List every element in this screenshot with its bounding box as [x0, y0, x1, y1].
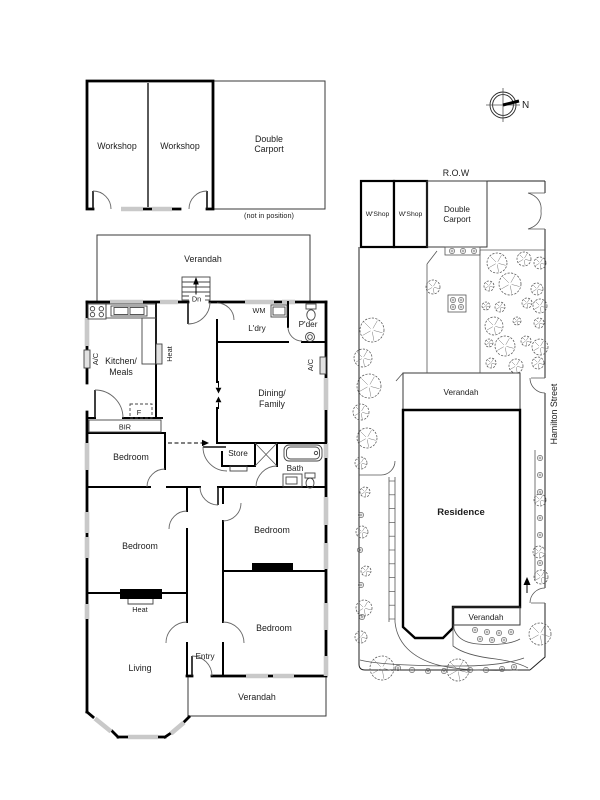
tree-icon [513, 317, 521, 325]
stairs-label: Dn [192, 295, 201, 304]
garden-path [389, 477, 395, 622]
verandah-front-label: Verandah [238, 692, 276, 702]
plant-icon [357, 547, 362, 552]
street-label: Hamilton Street [549, 383, 559, 444]
carport-label-line2: Carport [254, 144, 284, 154]
plant-icon [425, 668, 430, 673]
garden-bed [448, 295, 466, 312]
site-carport-label-line2: Carport [443, 215, 471, 224]
site-wshop-right-label: W'Shop [399, 211, 423, 218]
bir-label: BIR [119, 423, 131, 432]
heat-kitchen-label: Heat [165, 346, 174, 361]
tree-icon [534, 494, 546, 506]
site-residence-label: Residence [437, 507, 485, 518]
tree-icon [354, 349, 372, 367]
carport-label-line1: Double [255, 134, 283, 144]
tree-icon [356, 526, 368, 538]
tree-icon [482, 302, 490, 310]
plant-icon [537, 489, 542, 494]
heater-unit-kitchen [156, 344, 162, 364]
compass-icon: N [486, 88, 529, 122]
outbuilding-doors [93, 191, 207, 209]
north-label: N [522, 100, 529, 111]
tree-icon [529, 623, 551, 645]
plant-icon [477, 636, 482, 641]
site-structures [361, 181, 520, 638]
plant-icon [458, 297, 463, 302]
plant-icon [508, 629, 513, 634]
site-verandah-front-label: Verandah [468, 613, 504, 622]
bedroom3-label: Bedroom [122, 541, 158, 551]
workshop-right-label: Workshop [160, 141, 200, 151]
tree-icon [356, 600, 372, 616]
plant-icon [537, 455, 542, 460]
tree-icon [360, 487, 370, 497]
plant-icon [489, 637, 494, 642]
plant-icon [501, 637, 506, 642]
tree-icon [486, 358, 496, 368]
ac-unit-left [84, 350, 90, 368]
ac-right-label: A/C [306, 359, 315, 371]
floorplan-drawing: Workshop Workshop Double Carport (not in… [0, 0, 600, 800]
tree-icon [487, 253, 507, 273]
outbuilding-plan: Workshop Workshop Double Carport (not in… [87, 81, 325, 220]
position-note: (not in position) [244, 211, 294, 220]
fireplace-bedroom [252, 563, 293, 572]
basin-icon [306, 333, 315, 342]
bath-label: Bath [287, 464, 304, 473]
tree-icon [521, 336, 531, 346]
tree-icon [532, 357, 544, 369]
laundry-label: L'dry [248, 324, 266, 333]
plant-icon [450, 297, 455, 302]
row-label: R.O.W [443, 168, 470, 178]
tree-icon [484, 281, 494, 291]
tree-icon [485, 339, 493, 347]
tree-icon [517, 252, 531, 266]
verandah-back-label: Verandah [184, 254, 222, 264]
main-floor-plan: Verandah Dn Kitchen/ Meals Heat A/C L'dr… [84, 235, 326, 737]
driveway-gate-icon [528, 193, 545, 229]
kitchen-label-line2: Meals [109, 367, 133, 377]
bedroom1-label: Bedroom [113, 452, 149, 462]
kitchen-label-line1: Kitchen/ [105, 356, 137, 366]
plant-icon [537, 472, 542, 477]
tree-icon [499, 273, 521, 295]
site-carport [427, 181, 487, 247]
ac-left-label: A/C [91, 353, 100, 365]
plant-icon [460, 248, 465, 253]
plant-icon [496, 630, 501, 635]
tree-icon [353, 404, 369, 420]
dining-label-line2: Family [259, 399, 286, 409]
bedroom2-label: Bedroom [254, 525, 290, 535]
site-carport-label-line1: Double [444, 205, 470, 214]
plant-icon [359, 614, 364, 619]
tree-icon [534, 570, 548, 584]
tree-icon [355, 631, 367, 643]
tree-icon [357, 428, 377, 448]
tree-icon [534, 318, 544, 328]
plant-icon [537, 515, 542, 520]
fridge-label: F [137, 408, 142, 417]
tree-icon [426, 280, 440, 294]
plant-icon [511, 664, 516, 669]
plant-icon [537, 532, 542, 537]
bedroom4-label: Bedroom [256, 623, 292, 633]
tree-icon [485, 317, 503, 335]
tree-icon [361, 566, 371, 576]
path-rungs [389, 481, 395, 619]
tree-icon [370, 656, 394, 680]
side-gate-upper [530, 378, 545, 393]
tree-icon [355, 457, 367, 469]
tree-icon [495, 336, 515, 356]
workshop-left-label: Workshop [97, 141, 137, 151]
tree-icon [495, 302, 505, 312]
bench-return [142, 318, 156, 364]
tree-icon [531, 283, 543, 295]
stove-icon [88, 304, 106, 319]
tree-icon [360, 318, 384, 342]
tree-icon [532, 339, 548, 355]
flow-arrows [168, 381, 221, 446]
site-plan: R.O.W W'Shop W'Shop Double Carport Veran… [353, 168, 559, 681]
living-label: Living [129, 663, 152, 673]
tree-icon [357, 374, 381, 398]
plant-icon [441, 668, 446, 673]
entry-label: Entry [195, 652, 215, 661]
heat-living-label: Heat [132, 605, 147, 614]
fireplace-living [120, 589, 162, 599]
toilet-icon [307, 310, 315, 320]
plant-icon [484, 629, 489, 634]
plant-icon [458, 304, 463, 309]
plant-icon [499, 666, 504, 671]
plant-icon [471, 248, 476, 253]
site-residence [403, 410, 520, 638]
plant-icon [450, 304, 455, 309]
wm-label: WM [253, 306, 266, 315]
plant-icon [472, 627, 477, 632]
site-wshop-left-label: W'Shop [366, 211, 390, 218]
ac-unit-right [320, 357, 326, 374]
plant-icon [537, 560, 542, 565]
shower-icon [255, 443, 277, 466]
entry-arrow [524, 577, 531, 593]
site-verandah-back-label: Verandah [443, 388, 479, 397]
tree-icon [509, 359, 523, 373]
plant-icon [449, 248, 454, 253]
store-label: Store [228, 449, 248, 458]
tree-icon [534, 257, 546, 269]
tree-icon [522, 298, 532, 308]
laundry-fixtures [271, 305, 287, 317]
dining-label-line1: Dining/ [258, 388, 286, 398]
floorplan-page: Workshop Workshop Double Carport (not in… [0, 0, 600, 800]
side-gate-lower [530, 588, 545, 603]
powder-label: P'der [299, 320, 318, 329]
